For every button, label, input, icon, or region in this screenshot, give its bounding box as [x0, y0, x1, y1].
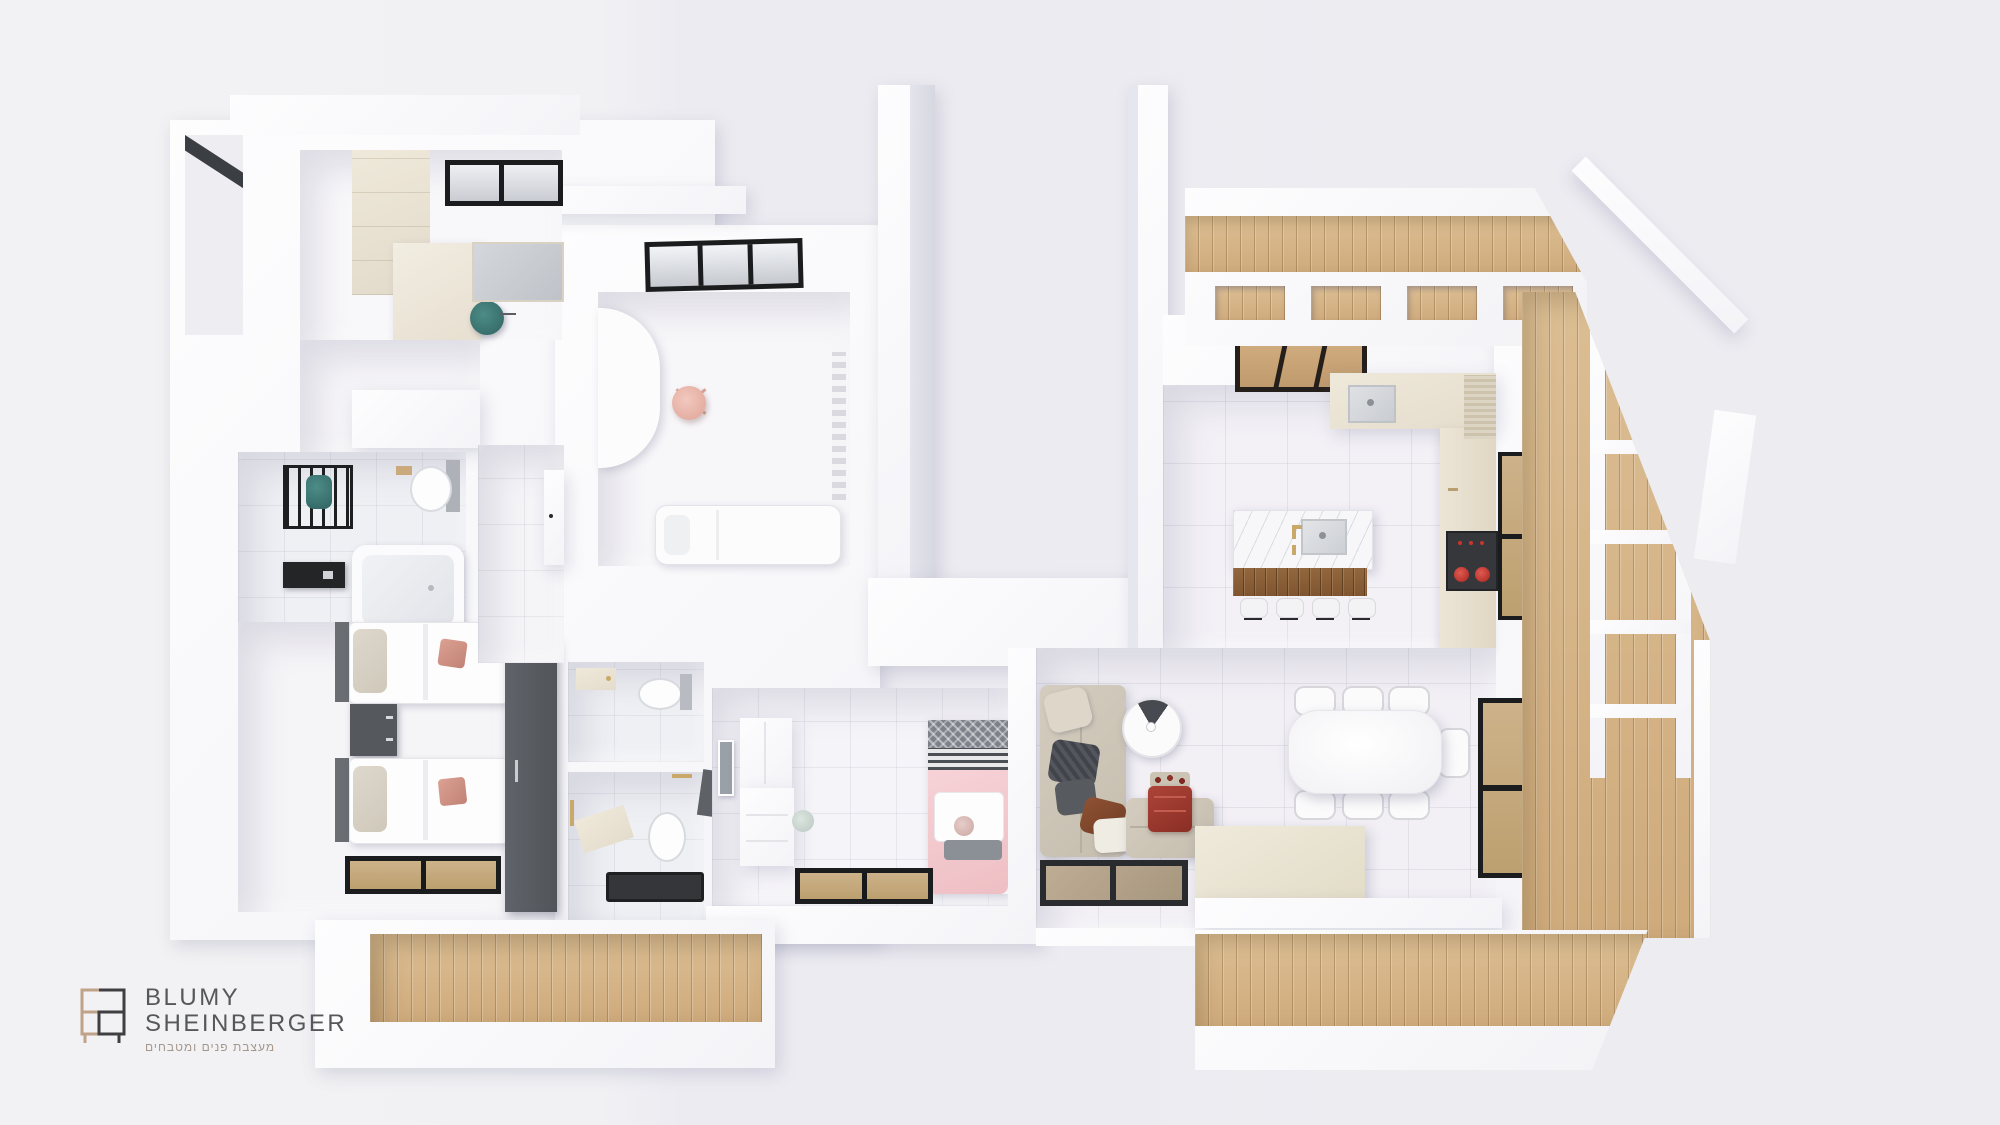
cooktop-dot — [1469, 541, 1473, 545]
room-center-bedroom — [598, 292, 850, 566]
stool-legs — [1244, 618, 1262, 620]
radiator — [832, 352, 846, 500]
pergola-rung — [1590, 530, 1691, 544]
study-office-chair — [470, 301, 504, 335]
brand-name-line2: SHEINBERGER — [145, 1011, 347, 1037]
stool-legs — [1280, 618, 1298, 620]
dining-chair — [1342, 790, 1384, 820]
study-frosted-window — [472, 242, 564, 302]
girls-bed — [928, 720, 1008, 894]
throw-fold — [1154, 810, 1186, 812]
bar-stool — [1348, 598, 1376, 618]
kitchen-island — [1233, 510, 1373, 570]
wall-dining-bottom — [1195, 898, 1502, 928]
bathtub-drain — [428, 585, 434, 591]
dining-chair — [1294, 790, 1336, 820]
bar-stool — [1276, 598, 1304, 618]
center-bedroom-window — [644, 238, 803, 292]
gold-tap — [606, 676, 611, 681]
wardrobe-seam — [764, 722, 766, 784]
room-girls-bedroom — [712, 688, 1012, 906]
pink-accent-pillow — [437, 638, 467, 668]
bar-stool — [1240, 598, 1268, 618]
curved-desk — [598, 308, 660, 468]
bed-pillow — [353, 766, 387, 832]
cabinet-handle — [549, 514, 553, 518]
bed-stripe-band — [928, 748, 1008, 770]
railing-opening — [1311, 286, 1381, 320]
dining-table — [1288, 710, 1442, 794]
bed-gray-patterned-band — [928, 720, 1008, 750]
building-edge-right — [1694, 410, 1756, 564]
study-desk — [393, 243, 481, 340]
gold-faucet — [1292, 545, 1296, 555]
brand-tagline: מעצבת פנים ומטבחים — [145, 1040, 347, 1054]
wc-vanity — [576, 668, 616, 690]
stool-legs — [1316, 618, 1334, 620]
shower-mat — [606, 872, 704, 902]
bathroom-wood-shelf — [396, 466, 412, 475]
table-mullion — [1110, 866, 1116, 900]
hallway-cabinet — [544, 470, 564, 565]
dining-chair — [1388, 790, 1430, 820]
balcony-top-wood-deck — [1185, 216, 1587, 272]
wc-toilet-tank — [680, 674, 692, 710]
dining-chair — [1438, 728, 1470, 778]
pergola-rung — [1590, 350, 1691, 364]
bed-headboard — [335, 758, 349, 842]
throw-fold — [1154, 796, 1186, 798]
kids-wardrobe — [505, 640, 557, 912]
room-shower — [568, 772, 704, 932]
girls-stool — [792, 810, 814, 832]
red-throw-blanket — [1148, 786, 1192, 832]
room-closet — [185, 135, 243, 335]
bottom-right-wood — [1195, 934, 1647, 1026]
wall-mirror — [718, 740, 734, 796]
room-bathroom — [238, 452, 466, 644]
blanket-seam — [423, 760, 428, 840]
wc-toilet — [638, 678, 682, 710]
bathtub-basin — [362, 555, 454, 625]
bed-pillow — [353, 629, 387, 693]
pink-desk-chair — [672, 386, 706, 420]
wall-column-left-face — [910, 85, 935, 585]
wall-study-top — [230, 95, 580, 135]
cabinet-handle — [1448, 488, 1458, 491]
wardrobe-handle — [515, 760, 518, 782]
kids-nightstand — [350, 704, 397, 756]
daybed-pillow — [664, 515, 690, 555]
cooktop-dot — [1458, 541, 1462, 545]
skylight-slat — [1274, 345, 1288, 387]
pergola-rung — [1590, 620, 1691, 634]
gray-folded-blanket — [944, 840, 1002, 860]
island-sink — [1301, 519, 1347, 555]
window-mullion — [421, 861, 426, 889]
stool-legs — [1352, 618, 1370, 620]
shower-toilet — [648, 812, 686, 862]
window-mullion — [862, 873, 867, 899]
pergola-rung — [1590, 440, 1691, 454]
bar-stool — [1312, 598, 1340, 618]
round-wall-art — [1122, 698, 1182, 758]
glass-coffee-table — [1040, 860, 1188, 906]
cooktop-dot — [1480, 541, 1484, 545]
railing-opening — [1215, 286, 1285, 320]
girls-desk — [740, 788, 794, 866]
pergola-edge — [1694, 640, 1712, 940]
nightstand-handle — [386, 716, 393, 719]
window-mullion — [697, 246, 703, 286]
plush-toy — [954, 816, 974, 836]
cooktop — [1446, 531, 1498, 591]
island-wood-front — [1233, 568, 1367, 596]
corridor-counter — [352, 390, 480, 448]
gold-towel-bar — [570, 800, 574, 826]
balcony-right-deck — [1522, 292, 1712, 938]
room-hallway — [478, 445, 564, 663]
pergola-rung — [1590, 704, 1691, 718]
brand-logo: BLUMY SHEINBERGER מעצבת פנים ומטבחים — [75, 985, 375, 1065]
floorplan-render: BLUMY SHEINBERGER מעצבת פנים ומטבחים — [0, 0, 2000, 1125]
girls-floor-window — [795, 868, 933, 904]
sink-drain — [1319, 532, 1326, 539]
brand-logo-icon — [75, 985, 131, 1047]
wall-column-kitchen-face — [1128, 85, 1138, 650]
room-kids-bedroom — [238, 622, 508, 912]
blanket-seam — [423, 624, 428, 700]
study-chair-leg — [500, 313, 516, 315]
skylight-slat — [1314, 345, 1328, 387]
sink-drain — [1367, 399, 1374, 406]
wall-living-left — [1008, 648, 1038, 932]
room-living-dining — [1036, 648, 1496, 932]
closet-open-door — [185, 135, 243, 196]
nightstand-handle — [386, 738, 393, 741]
bottom-left-wood — [370, 934, 762, 1022]
window-mullion — [747, 244, 753, 284]
daybed-seam — [716, 510, 719, 560]
bed-headboard — [335, 622, 349, 702]
wall-art-center — [1146, 722, 1156, 732]
kids-floor-window — [345, 856, 501, 894]
balcony-bottom-left — [315, 920, 775, 1068]
bathroom-teal-towel — [306, 475, 332, 509]
girls-wardrobe — [740, 718, 792, 788]
room-study — [300, 150, 562, 340]
study-black-window — [445, 160, 563, 206]
brand-text: BLUMY SHEINBERGER מעצבת פנים ומטבחים — [145, 985, 347, 1054]
building-chamfer-edge — [1572, 157, 1749, 334]
unit-detail — [323, 571, 333, 579]
cream-ottoman-platform — [1195, 826, 1365, 902]
window-mullion — [499, 165, 504, 201]
shower-vanity — [574, 805, 634, 853]
bathroom-toilet — [410, 466, 452, 512]
room-corridor — [300, 340, 480, 452]
room-toilet — [568, 662, 704, 762]
brand-name-line1: BLUMY — [145, 985, 347, 1011]
gold-faucet — [1292, 525, 1302, 529]
twin-bed-2 — [335, 758, 507, 842]
drawer-line — [746, 840, 788, 842]
daybed — [655, 505, 841, 565]
drawer-line — [746, 814, 788, 816]
roller-shutter-cabinet — [1464, 375, 1496, 439]
cooktop-knob-red — [1475, 567, 1490, 582]
pink-accent-pillow — [438, 777, 468, 807]
gold-towel-bar — [672, 774, 692, 778]
railing-opening — [1407, 286, 1477, 320]
bathroom-black-unit — [283, 562, 345, 588]
corner-sink — [1348, 385, 1396, 423]
cooktop-knob-red — [1454, 567, 1469, 582]
balcony-bottom-right — [1195, 930, 1657, 1070]
